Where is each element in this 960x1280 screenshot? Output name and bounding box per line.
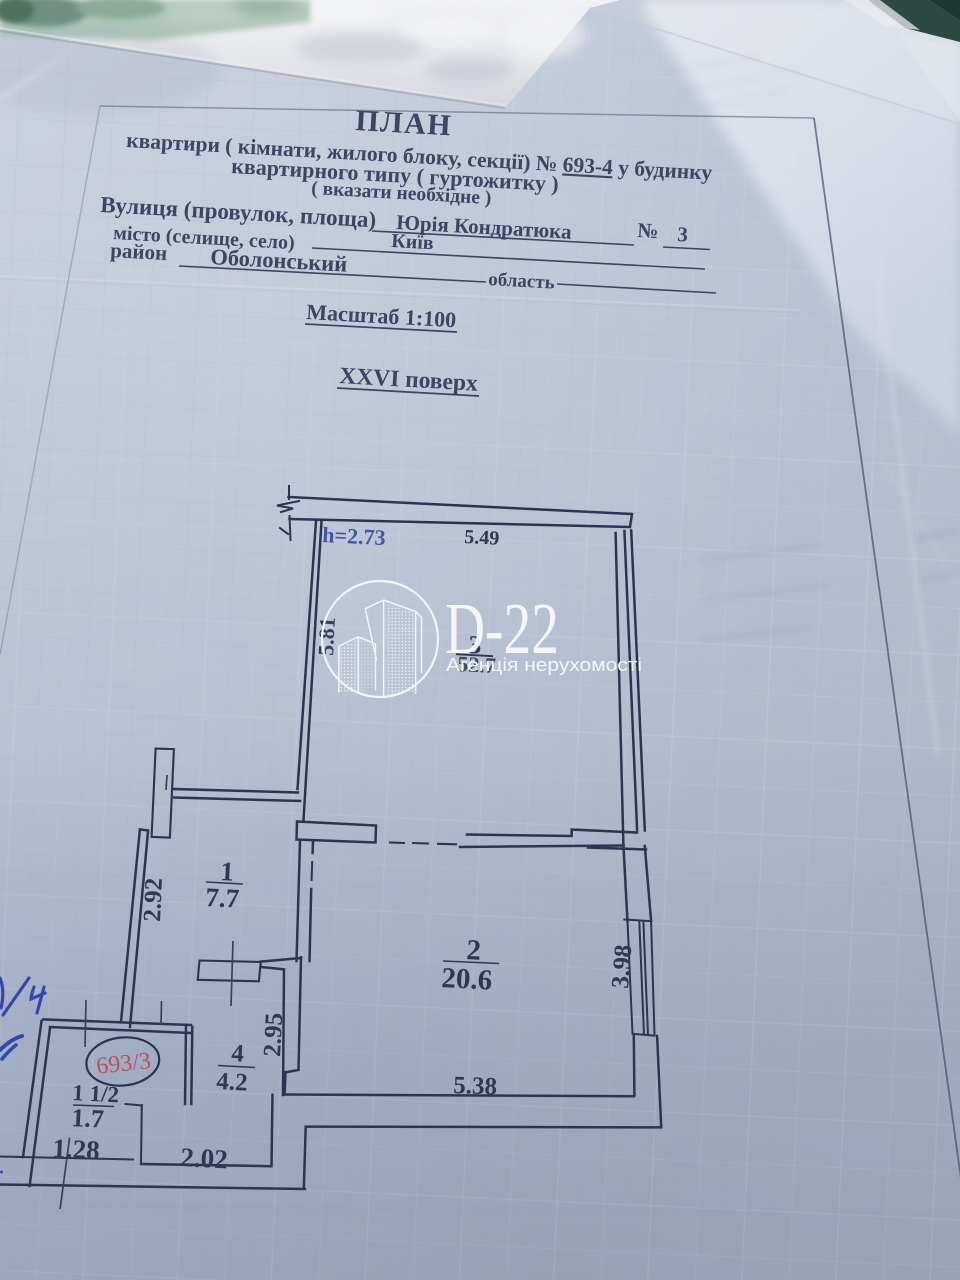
- svg-text:2.02: 2.02: [180, 1142, 229, 1174]
- svg-text:3: 3: [677, 222, 689, 247]
- svg-text:4: 4: [231, 1040, 245, 1068]
- svg-text:2.95: 2.95: [259, 1012, 288, 1057]
- svg-text:Агенція нерухомості: Агенція нерухомості: [446, 654, 642, 675]
- svg-text:1.7: 1.7: [71, 1103, 105, 1134]
- svg-text:Київ: Київ: [391, 230, 435, 254]
- svg-text:20.6: 20.6: [441, 962, 493, 997]
- svg-text:5.49: 5.49: [464, 526, 500, 550]
- svg-text:3.98: 3.98: [607, 944, 637, 990]
- svg-text:2.92: 2.92: [139, 877, 168, 922]
- svg-text:ПЛАН: ПЛАН: [355, 104, 453, 142]
- svg-text:h=2.73: h=2.73: [322, 522, 386, 550]
- svg-text:область: область: [488, 269, 556, 294]
- svg-text:4.2: 4.2: [216, 1068, 249, 1097]
- svg-text:7.7: 7.7: [205, 882, 240, 914]
- svg-text:№: №: [637, 218, 659, 243]
- svg-text:1.28: 1.28: [52, 1133, 101, 1165]
- svg-text:5.38: 5.38: [453, 1072, 498, 1101]
- svg-text:район: район: [110, 238, 168, 265]
